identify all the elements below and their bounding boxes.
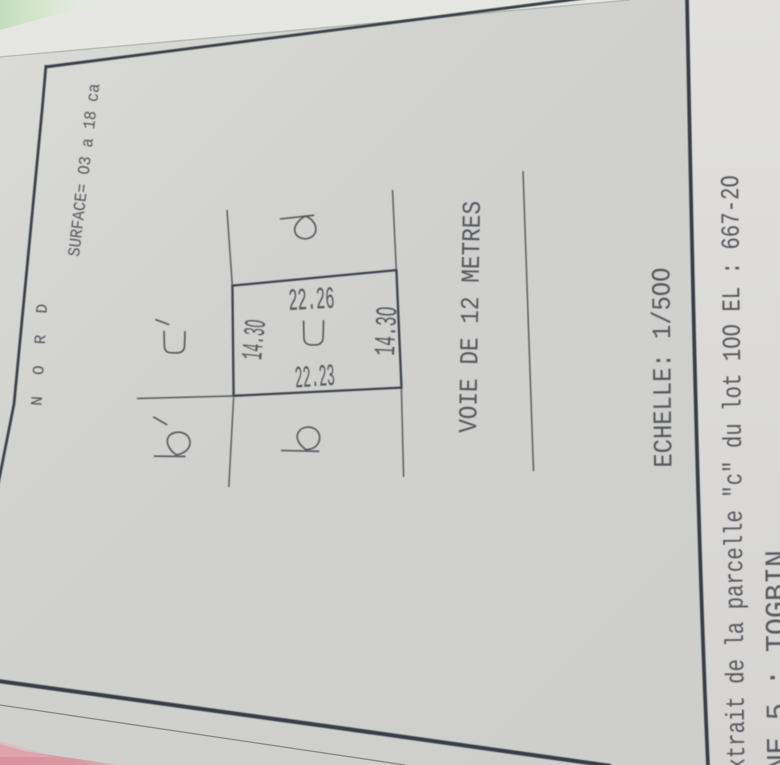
svg-text:14.3O: 14.3O	[370, 306, 407, 357]
svg-text:ECHELLE: 1/5OO: ECHELLE: 1/5OO	[647, 267, 679, 467]
svg-text:ZONE 5 : TOGBIN: ZONE 5 : TOGBIN	[761, 550, 780, 765]
svg-text:14.3O: 14.3O	[237, 318, 275, 361]
svg-text:VOIE DE 12 METRES: VOIE DE 12 METRES	[454, 201, 488, 433]
svg-text:Extrait de la parcelle "c" du: Extrait de la parcelle "c" du lot 1OO EL…	[716, 175, 752, 765]
svg-text:22.26: 22.26	[288, 283, 336, 320]
svg-text:22.23: 22.23	[294, 360, 336, 398]
